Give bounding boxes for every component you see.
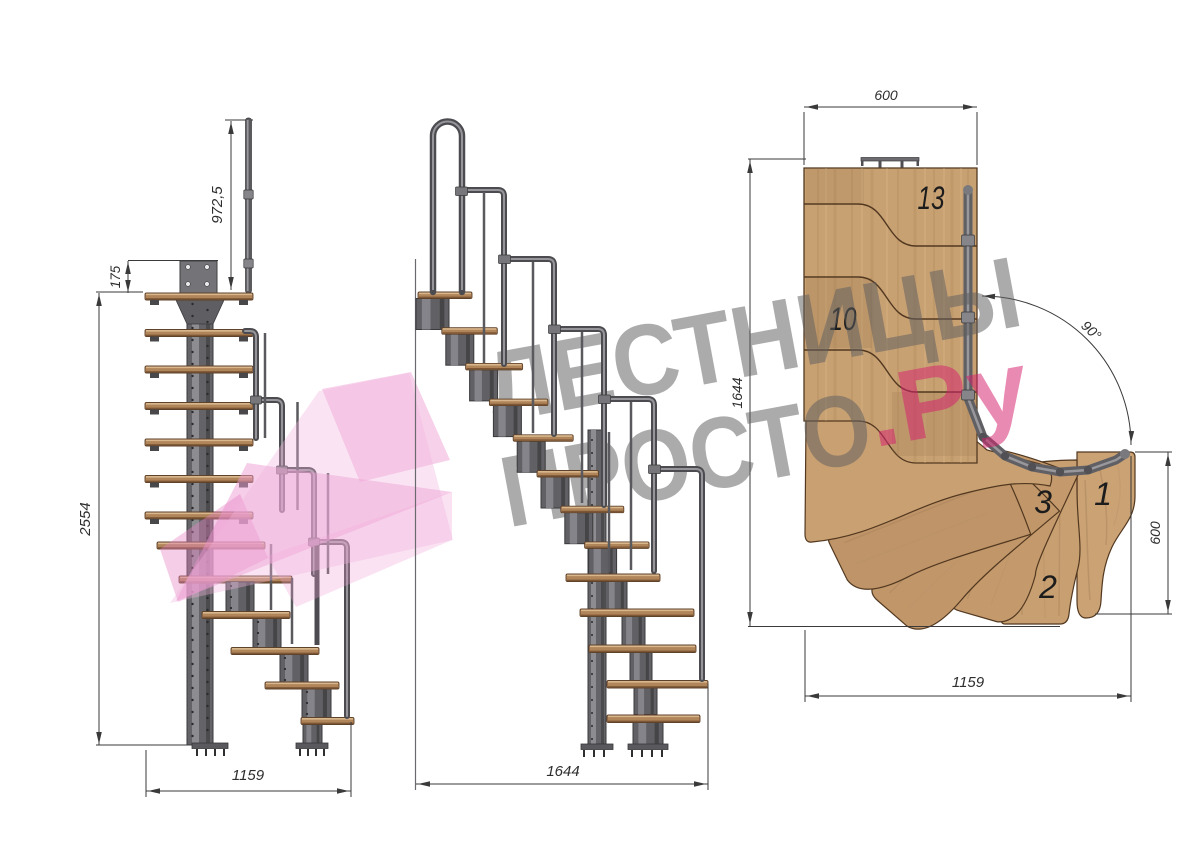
svg-text:1159: 1159 bbox=[952, 674, 985, 691]
svg-text:1: 1 bbox=[1094, 476, 1112, 512]
svg-text:3: 3 bbox=[1034, 484, 1052, 520]
svg-text:2: 2 bbox=[1038, 569, 1057, 605]
svg-text:2554: 2554 bbox=[77, 502, 94, 536]
svg-text:972,5: 972,5 bbox=[209, 186, 226, 224]
svg-text:1159: 1159 bbox=[232, 767, 265, 784]
svg-text:13: 13 bbox=[918, 180, 945, 216]
svg-text:600: 600 bbox=[1147, 521, 1163, 545]
svg-text:1644: 1644 bbox=[546, 763, 579, 780]
svg-text:600: 600 bbox=[874, 87, 898, 103]
svg-text:175: 175 bbox=[108, 265, 123, 288]
